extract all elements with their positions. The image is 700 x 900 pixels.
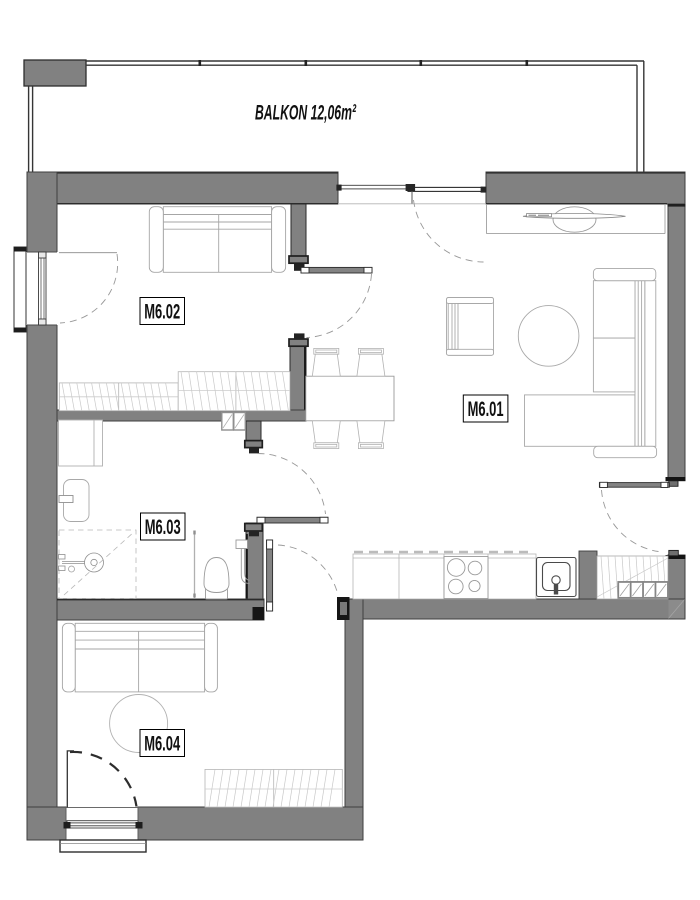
svg-text:M6.02: M6.02 — [144, 301, 180, 324]
svg-text:M6.03: M6.03 — [145, 516, 181, 539]
svg-text:BALKON 12,06m²: BALKON 12,06m² — [255, 101, 356, 125]
svg-text:M6.01: M6.01 — [468, 398, 504, 421]
svg-text:M6.04: M6.04 — [144, 733, 180, 756]
